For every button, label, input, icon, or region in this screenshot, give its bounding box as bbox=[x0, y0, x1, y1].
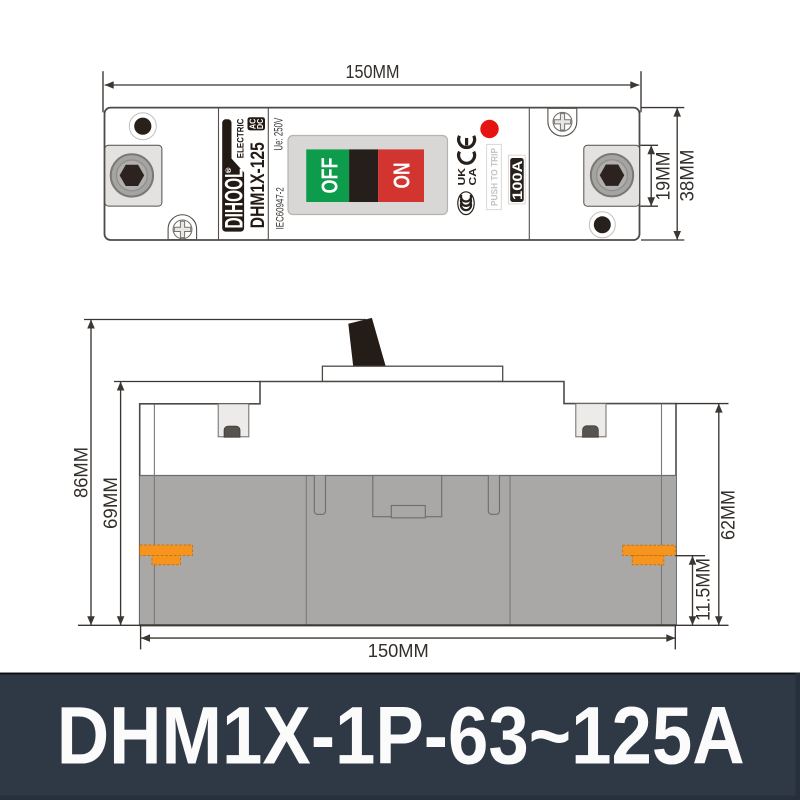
svg-text:PUSH TO TRIP: PUSH TO TRIP bbox=[490, 148, 500, 206]
svg-text:Ue: 250V: Ue: 250V bbox=[274, 118, 286, 151]
svg-text:IEC60947-2: IEC60947-2 bbox=[275, 187, 287, 229]
svg-text:DIHOOL: DIHOOL bbox=[221, 169, 249, 229]
svg-text:69MM: 69MM bbox=[101, 477, 122, 529]
svg-text:62MM: 62MM bbox=[719, 490, 740, 540]
svg-text:38MM: 38MM bbox=[677, 150, 698, 202]
svg-text:86MM: 86MM bbox=[71, 447, 92, 498]
svg-text:100A: 100A bbox=[509, 160, 525, 200]
svg-text:DHM1X-1P-63~125A: DHM1X-1P-63~125A bbox=[57, 691, 745, 782]
svg-text:DHM1X-125: DHM1X-125 bbox=[247, 142, 269, 228]
svg-text:OFF: OFF bbox=[316, 158, 342, 194]
svg-text:DC: DC bbox=[256, 118, 265, 129]
svg-text:CA: CA bbox=[467, 168, 479, 186]
svg-text:150MM: 150MM bbox=[368, 640, 429, 661]
svg-text:ON: ON bbox=[388, 163, 414, 189]
svg-text:ELECTRIC: ELECTRIC bbox=[236, 118, 247, 158]
svg-text:150MM: 150MM bbox=[346, 61, 400, 82]
svg-text:11.5MM: 11.5MM bbox=[693, 558, 714, 621]
svg-text:19MM: 19MM bbox=[654, 152, 675, 201]
